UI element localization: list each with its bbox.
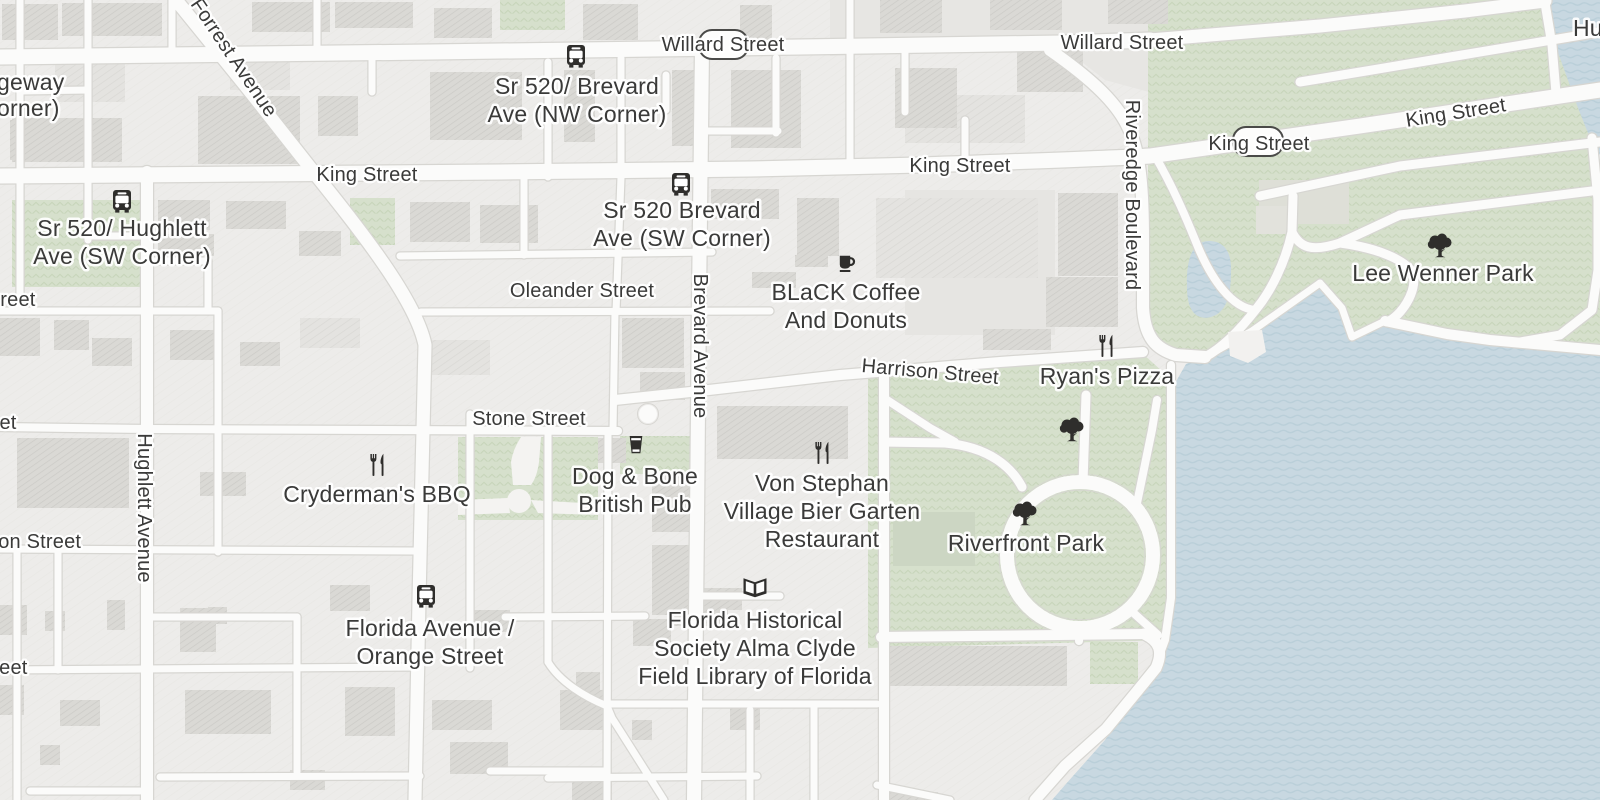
svg-text:Willard Street: Willard Street xyxy=(662,34,785,56)
svg-text:King Street: King Street xyxy=(1208,133,1309,155)
svg-text:Field Library of Florida: Field Library of Florida xyxy=(638,663,872,689)
svg-text:Sr 520 Brevard: Sr 520 Brevard xyxy=(603,197,761,223)
svg-text:Street: Street xyxy=(0,657,28,679)
svg-text:Dog & Bone: Dog & Bone xyxy=(572,463,698,489)
svg-text:Florida Historical: Florida Historical xyxy=(668,607,843,633)
svg-text:Restaurant: Restaurant xyxy=(765,526,880,552)
svg-text:Stone Street: Stone Street xyxy=(472,408,586,430)
svg-text:Florida Avenue /: Florida Avenue / xyxy=(346,615,515,641)
svg-text:King Street: King Street xyxy=(316,164,417,186)
svg-text:Orange Street: Orange Street xyxy=(356,643,503,669)
svg-text:orner): orner) xyxy=(0,95,60,121)
svg-text:Street: Street xyxy=(0,289,36,311)
svg-text:geway: geway xyxy=(0,69,65,95)
svg-text:Ave (SW Corner): Ave (SW Corner) xyxy=(33,243,211,269)
svg-text:Cryderman's BBQ: Cryderman's BBQ xyxy=(283,481,471,507)
svg-text:Brevard Avenue: Brevard Avenue xyxy=(689,274,711,419)
svg-text:Society Alma Clyde: Society Alma Clyde xyxy=(654,635,856,661)
svg-text:Ave (NW Corner): Ave (NW Corner) xyxy=(488,101,667,127)
svg-text:Sr 520/ Hughlett: Sr 520/ Hughlett xyxy=(37,215,207,241)
svg-text:And Donuts: And Donuts xyxy=(785,307,907,333)
svg-text:Lee Wenner Park: Lee Wenner Park xyxy=(1352,260,1534,286)
svg-text:Sr 520/ Brevard: Sr 520/ Brevard xyxy=(495,73,659,99)
svg-text:King Street: King Street xyxy=(909,155,1010,177)
svg-text:Hub: Hub xyxy=(1573,15,1600,41)
svg-text:Village Bier Garten: Village Bier Garten xyxy=(724,498,920,524)
svg-text:son Street: son Street xyxy=(0,531,81,553)
svg-text:Street: Street xyxy=(0,412,17,434)
svg-text:Oleander Street: Oleander Street xyxy=(510,280,654,302)
svg-text:Ave (SW Corner): Ave (SW Corner) xyxy=(593,225,771,251)
svg-text:British Pub: British Pub xyxy=(578,491,691,517)
svg-text:Riveredge Boulevard: Riveredge Boulevard xyxy=(1121,100,1143,291)
svg-text:Von Stephan: Von Stephan xyxy=(755,470,889,496)
svg-text:Riverfront Park: Riverfront Park xyxy=(948,530,1105,556)
svg-text:Hughlett Avenue: Hughlett Avenue xyxy=(133,433,155,582)
svg-text:BLaCK Coffee: BLaCK Coffee xyxy=(771,279,920,305)
svg-text:Ryan's Pizza: Ryan's Pizza xyxy=(1040,363,1175,389)
svg-text:Willard Street: Willard Street xyxy=(1061,32,1184,54)
